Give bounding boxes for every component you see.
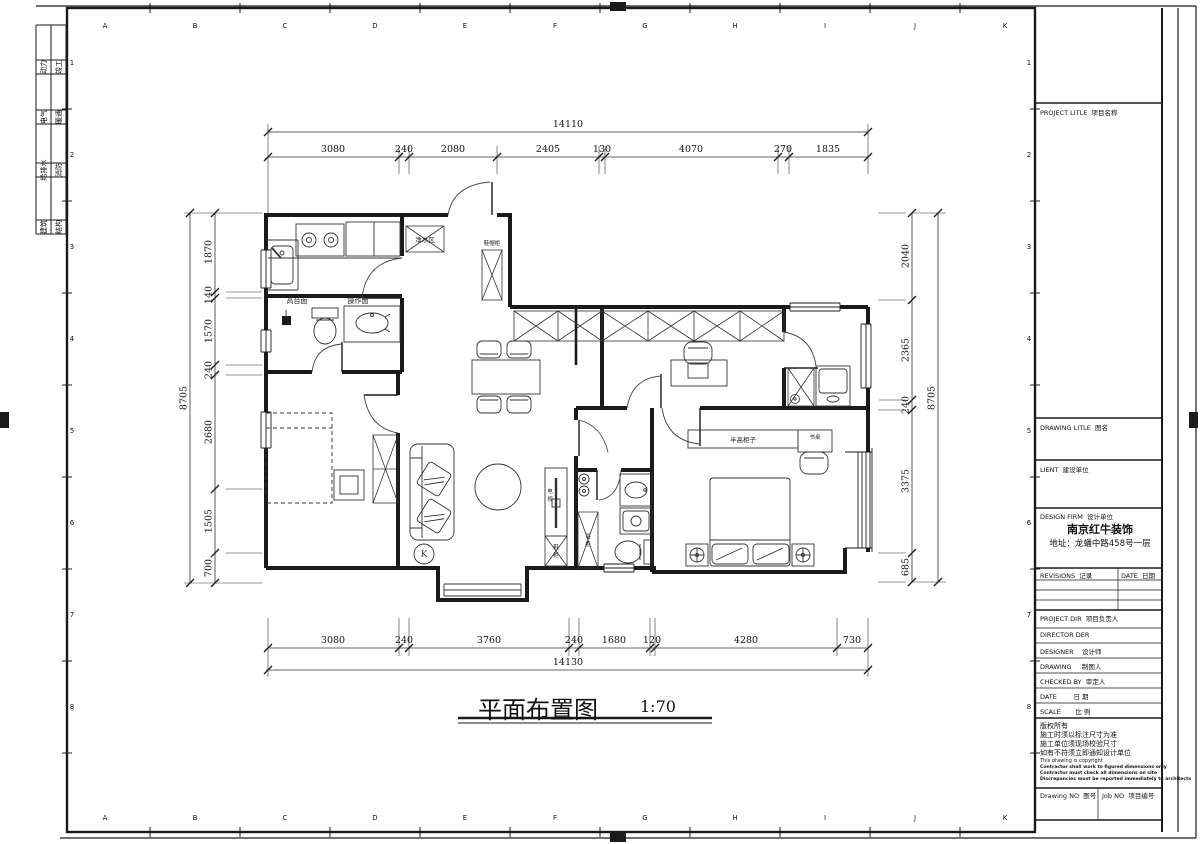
bedroom1-furniture [266, 413, 364, 503]
kitchen-fixtures [266, 222, 402, 325]
firm-address: 地址：龙蟠中路458号一层 [1040, 537, 1160, 549]
dining-table-icon [472, 360, 540, 394]
titleblock-project-title: PROJECT LITLE 项目名称 [1040, 107, 1160, 117]
titleblock-designer: DESIGNER 设计师 [1040, 646, 1160, 656]
grid-number: 1 [1027, 59, 1031, 67]
basin-icon [356, 313, 388, 333]
laundry-fixtures [816, 366, 850, 406]
grid-letter: J [914, 814, 916, 822]
dim-label: 130 [593, 144, 611, 155]
titleblock-director: DIRECTOR DER [1040, 631, 1160, 639]
grid-letter: D [372, 814, 377, 822]
grid-number: 7 [70, 611, 74, 619]
drawing-scale: 1:70 [640, 697, 676, 716]
plan-label-half-cabinet: 半高柜子 [730, 434, 756, 444]
grid-letter: D [372, 22, 377, 30]
copyright-line-en: Contractor must check all dimensions on … [1040, 771, 1158, 776]
rug-icon [475, 464, 521, 510]
dimension-lines [184, 124, 946, 677]
bed-icon [710, 478, 790, 566]
dim-label: 1505 [204, 509, 215, 533]
dim-label: 240 [204, 361, 215, 379]
grid-letter: H [732, 22, 737, 30]
dim-label: 1870 [204, 240, 215, 264]
grid-letter: J [914, 22, 916, 30]
copyright-line-en: Discrepancies must be reported immediate… [1040, 777, 1158, 782]
copyright-line-en: This drawing is copyright [1040, 758, 1158, 764]
discipline-label: 建筑 [39, 220, 49, 234]
grid-letter: B [193, 22, 198, 30]
dim-label: 8705 [179, 386, 190, 410]
dim-label: 4280 [734, 635, 758, 646]
toilet-icon [312, 308, 338, 318]
dim-label: 1680 [602, 635, 626, 646]
grid-letter: A [103, 814, 108, 822]
grid-number: 6 [1027, 519, 1031, 527]
centering-marks [0, 2, 1198, 842]
copyright-line-en: Contractor shall work to figured dimensi… [1040, 765, 1158, 770]
dim-label: 700 [204, 559, 215, 577]
grid-letter: F [553, 22, 557, 30]
dim-label: 3080 [321, 144, 345, 155]
bath1-fixtures [312, 306, 400, 344]
discipline-label: 消防 [54, 163, 64, 177]
master-bedroom-furniture [686, 430, 832, 566]
grid-number: 4 [70, 335, 74, 343]
grid-letter: G [642, 814, 647, 822]
dim-label: 4070 [679, 144, 703, 155]
plan-label-desk: 书桌 [809, 433, 820, 441]
grid-letter: E [463, 22, 467, 30]
grid-number: 8 [1027, 703, 1031, 711]
dim-label: 3375 [901, 469, 912, 493]
chair-icon [507, 341, 531, 358]
chair-icon [477, 341, 501, 358]
titleblock-client: LIENT 建设单位 [1040, 464, 1160, 474]
plan-label-shoe-cabinet: 鞋柜 [553, 543, 560, 559]
k-mark-label: K [421, 550, 427, 559]
grid-letter: C [283, 22, 288, 30]
drawing-title: 平面布置图 [478, 690, 598, 725]
dim-label: 3080 [321, 635, 345, 646]
chair-icon [684, 342, 712, 364]
study-furniture [671, 342, 727, 386]
grid-letter: K [1003, 22, 1008, 30]
chair-icon [507, 396, 531, 413]
grid-number: 6 [70, 519, 74, 527]
washer-icon [816, 366, 850, 406]
titleblock-date-col: DATE 日期 [1121, 570, 1161, 580]
dining-furniture [472, 341, 540, 413]
dim-label: 240 [395, 144, 413, 155]
plan-label-bath-cabinet: 浴柜 [585, 532, 592, 548]
grid-letter: F [553, 814, 557, 822]
dim-label: 240 [565, 635, 583, 646]
dim-label: 2080 [441, 144, 465, 155]
grid-number: 2 [1027, 151, 1031, 159]
discipline-label: 动力 [39, 60, 49, 74]
dim-label: 240 [901, 396, 912, 414]
cabinets [373, 226, 814, 568]
drawing-sheet: 14110 3080 240 2080 2405 130 4070 270 18… [0, 0, 1200, 844]
plan-label-purifier: 净水区 [415, 234, 435, 244]
grid-letter: B [193, 814, 198, 822]
bath2-fixtures [579, 474, 652, 564]
discipline-label: 暖通 [54, 110, 64, 124]
dim-label: 2680 [204, 420, 215, 444]
titleblock-drawing-by: DRAWING 制图人 [1040, 661, 1160, 671]
dim-label: 2365 [901, 338, 912, 362]
grid-number: 4 [1027, 335, 1031, 343]
grid-number: 3 [1027, 243, 1031, 251]
grid-letter: C [283, 814, 288, 822]
plan-label-entry-cabinet: 鞋帽柜 [484, 239, 501, 247]
dim-label: 14130 [553, 657, 583, 668]
plan-label-counter-high: 高台面 [287, 296, 308, 306]
living-room-furniture [410, 444, 567, 596]
dim-label: 8705 [927, 386, 938, 410]
dim-label: 1570 [204, 319, 215, 343]
dim-label: 140 [204, 286, 215, 304]
titleblock-checked-by: CHECKED BY 审定人 [1040, 676, 1160, 686]
dim-label: 2040 [901, 244, 912, 268]
grid-letter: A [103, 22, 108, 30]
discipline-label: 给排水 [39, 160, 49, 181]
dim-label: 120 [643, 635, 661, 646]
plan-label-tv: 电视 [547, 487, 554, 503]
grid-number: 1 [70, 59, 74, 67]
floor-plan-linework [0, 0, 1200, 844]
grid-number: 5 [70, 427, 74, 435]
discipline-label: 结构 [54, 220, 64, 234]
washer-icon [620, 508, 652, 534]
titleblock-date-row: DATE 日 期 [1040, 691, 1160, 701]
discipline-label: 电气 [39, 110, 49, 124]
discipline-strip [36, 25, 66, 234]
firm-name: 南京红牛装饰 [1040, 521, 1160, 537]
grid-letter: I [824, 22, 826, 30]
grid-number: 2 [70, 151, 74, 159]
dim-label: 730 [843, 635, 861, 646]
titleblock-job-no: Job NO 项目编号 [1102, 790, 1160, 800]
grid-letter: I [824, 814, 826, 822]
dim-label: 240 [395, 635, 413, 646]
discipline-label: 竣工 [54, 60, 64, 74]
dim-label: 2405 [536, 144, 560, 155]
grid-letter: E [463, 814, 467, 822]
copyright-line: 如有不符须立即通知设计单位 [1040, 748, 1158, 758]
chair-icon [800, 452, 828, 474]
grid-letter: G [642, 22, 647, 30]
dim-label: 270 [774, 144, 792, 155]
bed-icon [266, 413, 332, 503]
dim-label: 685 [901, 558, 912, 576]
grid-number: 5 [1027, 427, 1031, 435]
grid-letter: H [732, 814, 737, 822]
titleblock-drawing-title: DRAWING LITLE 图名 [1040, 422, 1160, 432]
grid-number: 8 [70, 703, 74, 711]
grid-number: 3 [70, 243, 74, 251]
dim-label: 14110 [553, 119, 583, 130]
titleblock-project-dir: PROJECT DIR 项目负责人 [1040, 613, 1160, 623]
dim-label: 3760 [477, 635, 501, 646]
titleblock-scale-row: SCALE 比 例 [1040, 706, 1160, 716]
plan-label-counter-work: 操作面 [348, 296, 369, 306]
titleblock-design-firm: DESIGN FIRM 设计单位 [1040, 511, 1160, 521]
grid-letter: K [1003, 814, 1008, 822]
grid-number: 7 [1027, 611, 1031, 619]
stove-icon [296, 224, 344, 256]
steps-icon [444, 584, 521, 596]
chair-icon [477, 396, 501, 413]
dim-label: 1835 [816, 144, 840, 155]
